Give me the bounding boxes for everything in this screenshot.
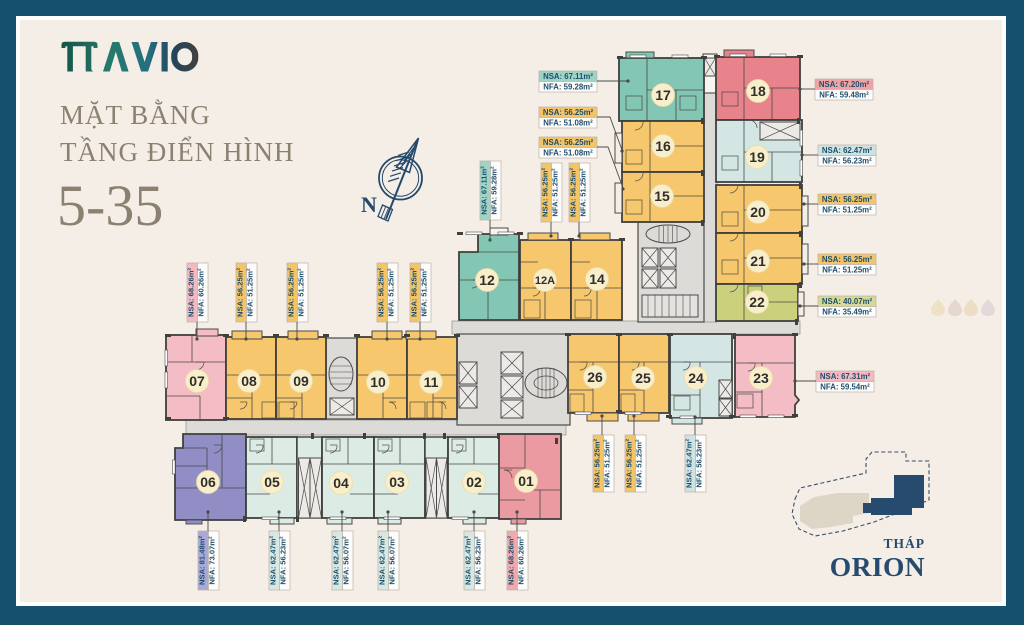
svg-text:NSA: 56.25m²: NSA: 56.25m² — [543, 138, 594, 147]
svg-text:22: 22 — [749, 294, 765, 310]
svg-text:08: 08 — [241, 373, 257, 389]
svg-text:NFA: 56.07m²: NFA: 56.07m² — [388, 536, 397, 585]
svg-text:NFA: 59.28m²: NFA: 59.28m² — [543, 83, 593, 92]
svg-text:NFA: 51.25m²: NFA: 51.25m² — [246, 268, 255, 317]
svg-text:11: 11 — [424, 374, 439, 390]
svg-text:NFA: 56.23m²: NFA: 56.23m² — [822, 157, 872, 166]
svg-text:26: 26 — [587, 369, 603, 385]
svg-text:NFA: 51.08m²: NFA: 51.08m² — [543, 119, 593, 128]
svg-text:NFA: 51.25m²: NFA: 51.25m² — [603, 439, 612, 488]
svg-text:NSA: 68.26m²: NSA: 68.26m² — [187, 268, 196, 317]
svg-text:NFA: 56.23m²: NFA: 56.23m² — [474, 536, 483, 585]
svg-text:NSA: 56.25m²: NSA: 56.25m² — [541, 168, 550, 217]
svg-text:06: 06 — [200, 474, 216, 490]
svg-text:NSA: 62.47m²: NSA: 62.47m² — [269, 536, 278, 585]
svg-text:17: 17 — [655, 87, 671, 103]
svg-text:NSA: 56.25m²: NSA: 56.25m² — [287, 268, 296, 317]
svg-text:NSA: 62.47m²: NSA: 62.47m² — [332, 536, 341, 585]
svg-text:N: N — [361, 192, 377, 217]
svg-text:14: 14 — [589, 271, 605, 287]
svg-text:NFA: 56.23m²: NFA: 56.23m² — [695, 439, 704, 488]
svg-text:NFA: 51.25m²: NFA: 51.25m² — [822, 266, 872, 275]
svg-text:NFA: 51.25m²: NFA: 51.25m² — [297, 268, 306, 317]
svg-text:NFA: 51.25m²: NFA: 51.25m² — [635, 439, 644, 488]
svg-text:NFA: 73.07m²: NFA: 73.07m² — [208, 536, 217, 585]
svg-text:NSA: 81.48m²: NSA: 81.48m² — [198, 536, 207, 585]
svg-text:NFA: 59.28m²: NFA: 59.28m² — [490, 166, 499, 215]
svg-text:NSA: 56.25m²: NSA: 56.25m² — [377, 268, 386, 317]
svg-text:10: 10 — [370, 374, 386, 390]
svg-text:12: 12 — [479, 272, 495, 288]
svg-text:NSA: 62.47m²: NSA: 62.47m² — [464, 536, 473, 585]
svg-text:02: 02 — [466, 474, 482, 490]
svg-text:24: 24 — [688, 370, 704, 386]
svg-text:NFA: 51.25m²: NFA: 51.25m² — [551, 168, 560, 217]
svg-text:07: 07 — [189, 373, 205, 389]
svg-text:15: 15 — [654, 188, 670, 204]
svg-text:03: 03 — [389, 474, 405, 490]
svg-text:16: 16 — [655, 138, 671, 154]
svg-text:NFA: 51.08m²: NFA: 51.08m² — [543, 149, 593, 158]
svg-text:04: 04 — [333, 475, 349, 491]
svg-text:NSA: 56.25m²: NSA: 56.25m² — [569, 168, 578, 217]
svg-text:NFA: 59.48m²: NFA: 59.48m² — [819, 91, 869, 100]
svg-text:NSA: 62.47m²: NSA: 62.47m² — [822, 146, 873, 155]
svg-text:NFA: 60.26m²: NFA: 60.26m² — [517, 536, 526, 585]
svg-text:05: 05 — [264, 474, 280, 490]
svg-text:NSA: 56.25m²: NSA: 56.25m² — [822, 255, 873, 264]
svg-text:NSA: 56.25m²: NSA: 56.25m² — [593, 439, 602, 488]
svg-text:09: 09 — [293, 373, 309, 389]
svg-text:NSA: 40.07m²: NSA: 40.07m² — [822, 297, 873, 306]
svg-text:NFA: 35.49m²: NFA: 35.49m² — [822, 308, 872, 317]
svg-text:NSA: 67.11m²: NSA: 67.11m² — [543, 72, 593, 81]
svg-text:NSA: 56.25m²: NSA: 56.25m² — [410, 268, 419, 317]
svg-text:ORION: ORION — [830, 551, 925, 582]
svg-text:NSA: 68.26m²: NSA: 68.26m² — [507, 536, 516, 585]
svg-text:NSA: 67.20m²: NSA: 67.20m² — [819, 80, 870, 89]
svg-text:20: 20 — [750, 204, 766, 220]
svg-text:NFA: 60.26m²: NFA: 60.26m² — [197, 268, 206, 317]
svg-text:NSA: 56.25m²: NSA: 56.25m² — [236, 268, 245, 317]
svg-text:21: 21 — [750, 253, 766, 269]
svg-text:NSA: 56.25m²: NSA: 56.25m² — [822, 195, 873, 204]
svg-text:NFA: 56.07m²: NFA: 56.07m² — [342, 536, 351, 585]
svg-text:18: 18 — [750, 83, 766, 99]
svg-text:NFA: 56.23m²: NFA: 56.23m² — [279, 536, 288, 585]
svg-text:25: 25 — [635, 370, 651, 386]
svg-text:19: 19 — [749, 149, 765, 165]
svg-text:12A: 12A — [535, 275, 555, 287]
svg-text:NFA: 59.54m²: NFA: 59.54m² — [820, 383, 870, 392]
svg-text:NSA: 67.11m²: NSA: 67.11m² — [480, 166, 489, 215]
svg-text:NFA: 51.25m²: NFA: 51.25m² — [420, 268, 429, 317]
svg-text:NFA: 51.25m²: NFA: 51.25m² — [387, 268, 396, 317]
svg-text:THÁP: THÁP — [883, 536, 925, 551]
svg-text:NFA: 51.25m²: NFA: 51.25m² — [822, 206, 872, 215]
svg-text:NSA: 62.47m²: NSA: 62.47m² — [685, 439, 694, 488]
svg-text:NFA: 51.25m²: NFA: 51.25m² — [579, 168, 588, 217]
svg-text:NSA: 62.47m²: NSA: 62.47m² — [378, 536, 387, 585]
svg-text:NSA: 67.31m²: NSA: 67.31m² — [820, 372, 871, 381]
svg-text:01: 01 — [518, 473, 534, 489]
svg-text:NSA: 56.25m²: NSA: 56.25m² — [543, 108, 594, 117]
svg-text:23: 23 — [753, 370, 769, 386]
svg-text:NSA: 56.25m²: NSA: 56.25m² — [625, 439, 634, 488]
